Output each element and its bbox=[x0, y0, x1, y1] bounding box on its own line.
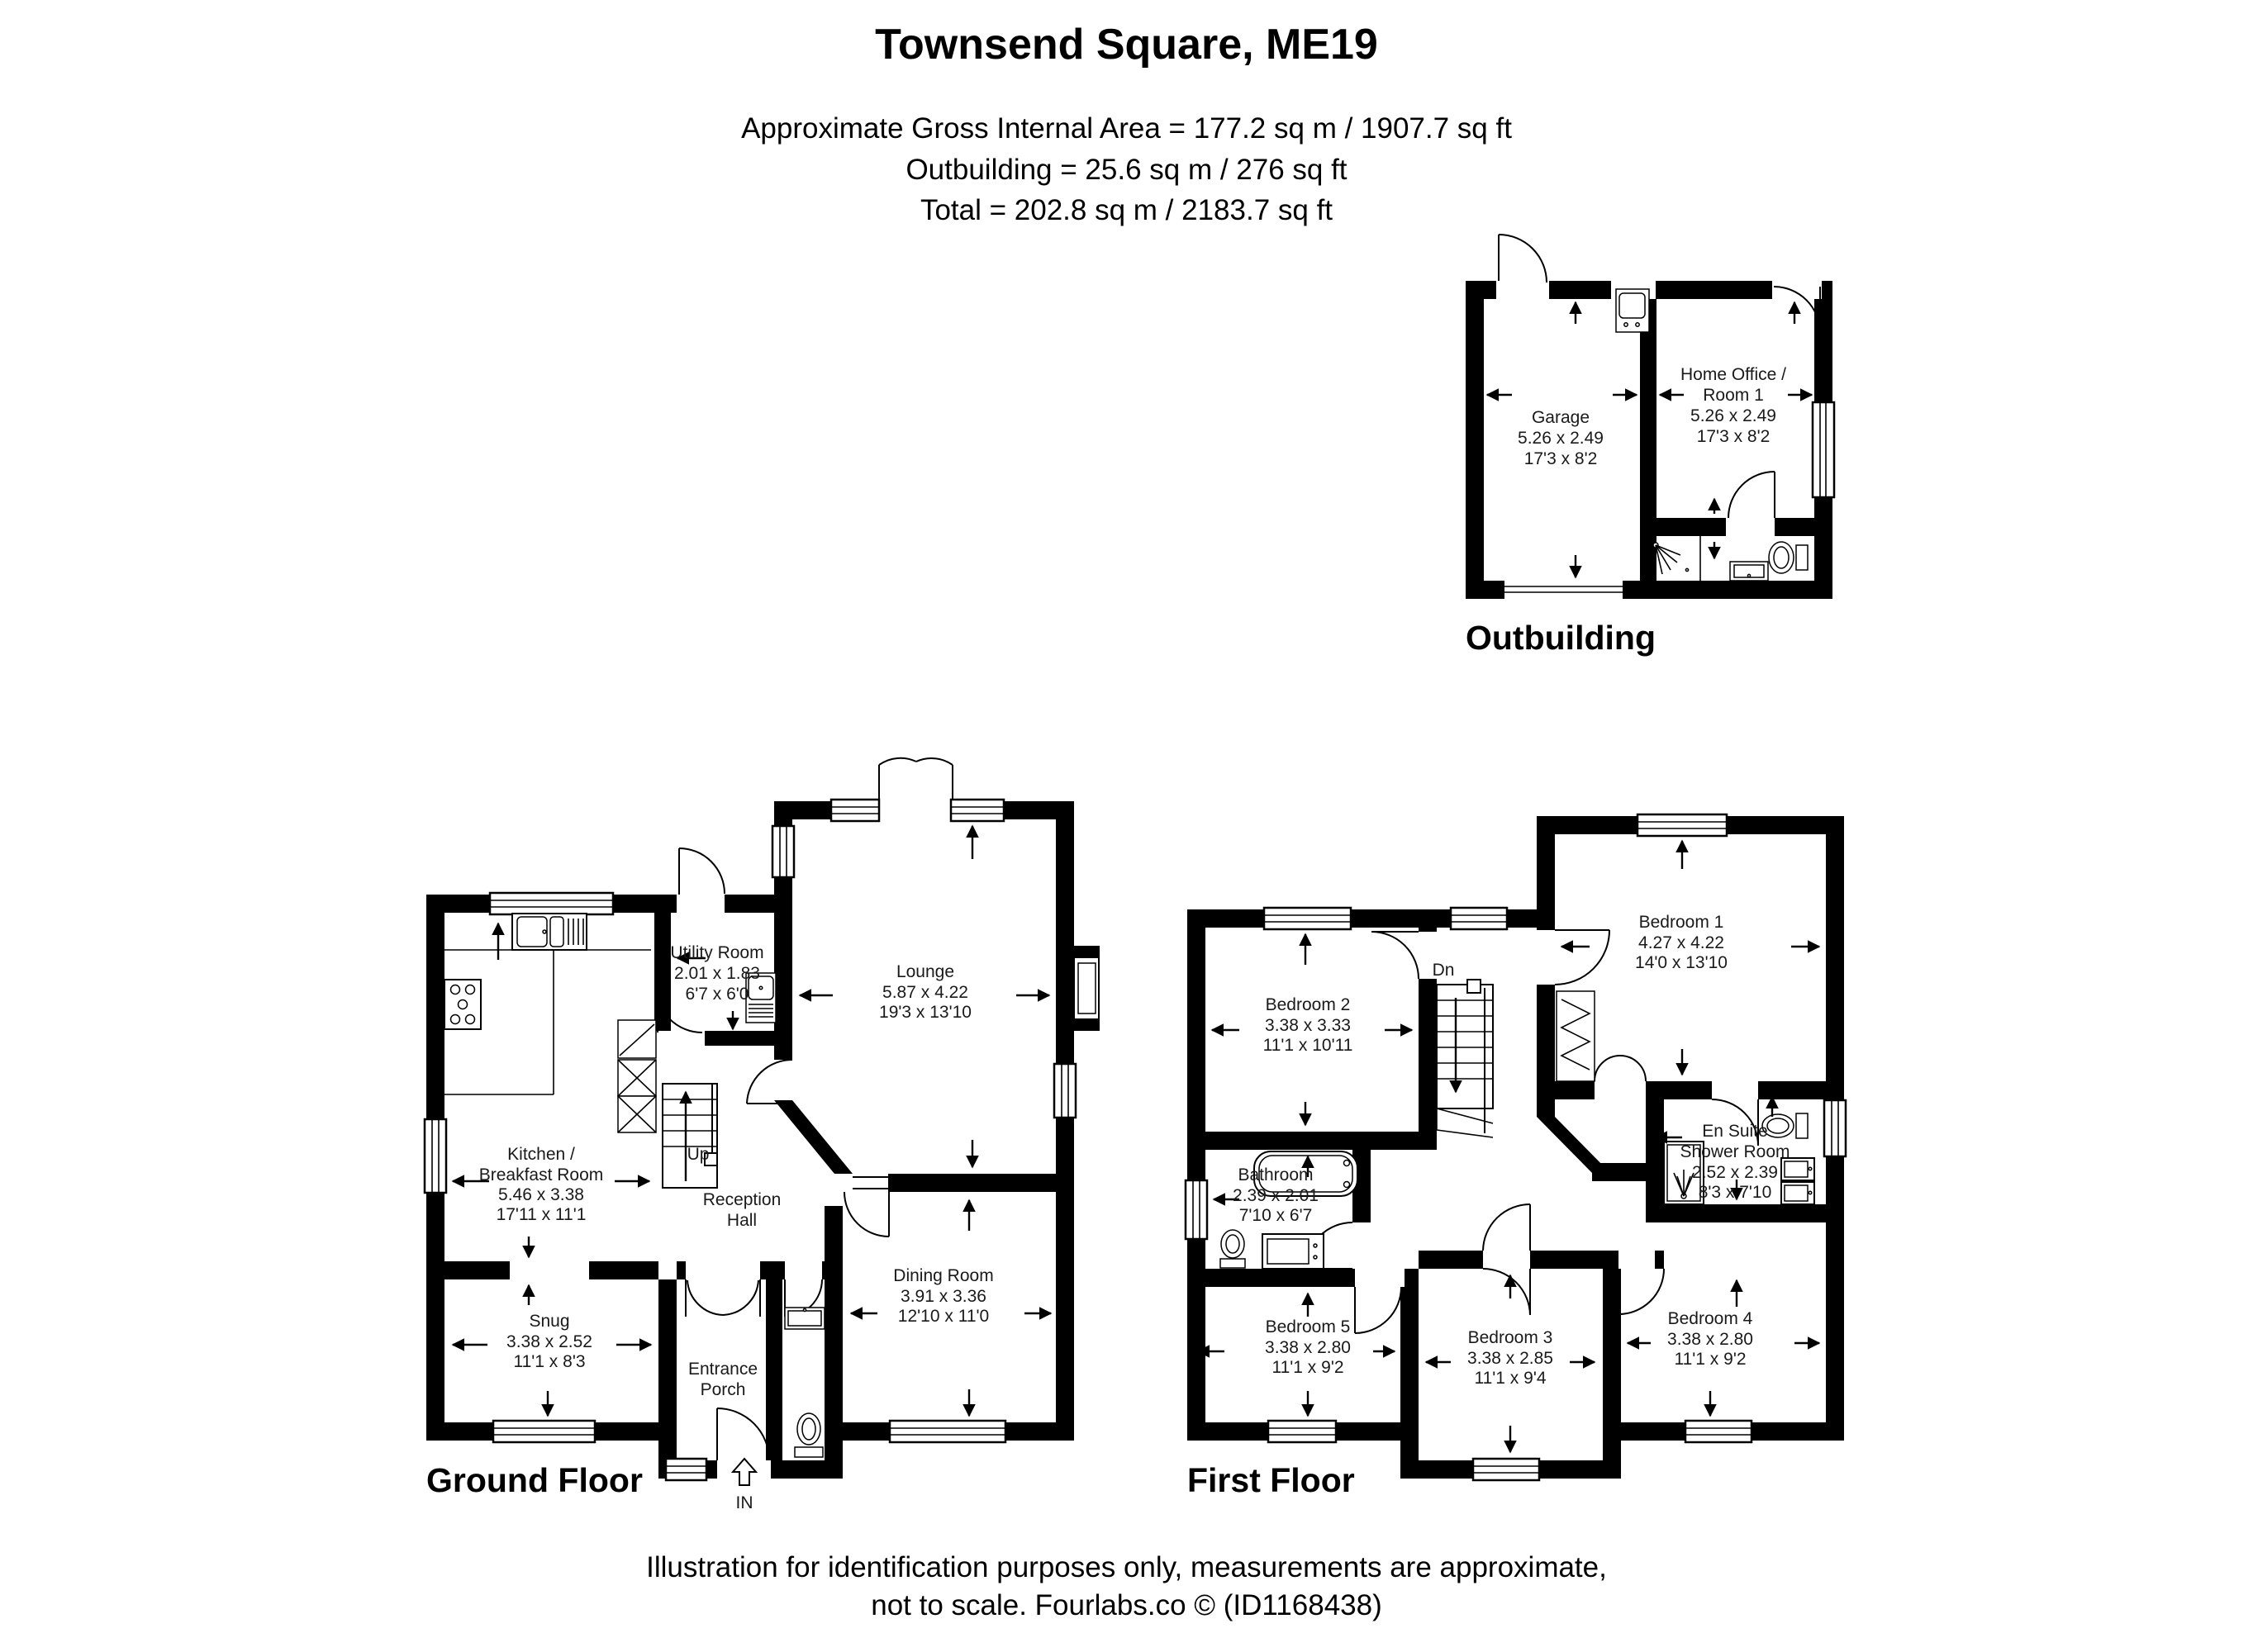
sink-icon bbox=[1616, 289, 1649, 332]
svg-text:5.26 x 2.49: 5.26 x 2.49 bbox=[1518, 429, 1604, 448]
bathroom-vanity-icon bbox=[1262, 1234, 1324, 1269]
outbuilding-title: Outbuilding bbox=[1466, 619, 1656, 657]
wc-basin-icon bbox=[785, 1308, 825, 1329]
svg-text:Breakfast Room: Breakfast Room bbox=[479, 1165, 604, 1184]
in-label: IN bbox=[736, 1493, 753, 1512]
wc-toilet-icon bbox=[795, 1413, 823, 1457]
svg-text:14'0 x 13'10: 14'0 x 13'10 bbox=[1635, 953, 1728, 972]
window-bedroom1-top bbox=[1637, 814, 1727, 836]
svg-text:3.38 x 2.80: 3.38 x 2.80 bbox=[1667, 1330, 1753, 1349]
page-title: Townsend Square, ME19 bbox=[0, 20, 2253, 69]
ensuite-label: En Suite bbox=[1702, 1122, 1767, 1141]
utility-label: Utility Room bbox=[670, 943, 763, 962]
window-bedroom4-bottom bbox=[1685, 1421, 1752, 1442]
bedroom2-label: Bedroom 2 bbox=[1266, 995, 1351, 1014]
outbuilding-area: Outbuilding = 25.6 sq m / 276 sq ft bbox=[0, 154, 2253, 187]
window-lounge-left bbox=[772, 826, 794, 877]
svg-text:2.52 x 2.39: 2.52 x 2.39 bbox=[1692, 1163, 1778, 1182]
ground-floor-title: Ground Floor bbox=[426, 1461, 643, 1499]
ground-floor-plan: Utility Room 2.01 x 1.83 6'7 x 6'0 Loung… bbox=[405, 743, 1115, 1528]
svg-text:5.26 x 2.49: 5.26 x 2.49 bbox=[1690, 406, 1776, 425]
window-porch-bottom bbox=[666, 1459, 706, 1480]
outbuilding-plan: Garage 5.26 x 2.49 17'3 x 8'2 Home Offic… bbox=[1438, 215, 1884, 677]
disclaimer-line2: not to scale. Fourlabs.co © (ID1168438) bbox=[0, 1589, 2253, 1622]
floorplan-page: Townsend Square, ME19 Approximate Gross … bbox=[0, 0, 2253, 1652]
wc-fixtures bbox=[785, 1308, 825, 1457]
svg-text:2.39 x 2.01: 2.39 x 2.01 bbox=[1233, 1186, 1319, 1205]
bedroom3-label: Bedroom 3 bbox=[1468, 1328, 1553, 1347]
kitchen-sink-icon bbox=[512, 914, 587, 950]
svg-text:6'7 x 6'0: 6'7 x 6'0 bbox=[686, 985, 749, 1004]
gross-internal-area: Approximate Gross Internal Area = 177.2 … bbox=[0, 112, 2253, 145]
svg-text:Hall: Hall bbox=[727, 1211, 757, 1230]
window-bedroom2-top-1 bbox=[1264, 908, 1351, 929]
svg-text:5.87 x 4.22: 5.87 x 4.22 bbox=[882, 983, 968, 1002]
bathroom-label: Bathroom bbox=[1238, 1165, 1313, 1184]
svg-text:17'3 x 8'2: 17'3 x 8'2 bbox=[1524, 449, 1598, 468]
openings bbox=[1355, 930, 1655, 1287]
labels: Garage 5.26 x 2.49 17'3 x 8'2 Home Offic… bbox=[1466, 365, 1786, 657]
lounge-label: Lounge bbox=[896, 962, 954, 981]
bedroom5-label: Bedroom 5 bbox=[1266, 1317, 1351, 1336]
kitchen-label: Kitchen / bbox=[507, 1145, 575, 1164]
svg-text:11'1 x 9'4: 11'1 x 9'4 bbox=[1474, 1369, 1546, 1388]
ensuite-toilet-icon bbox=[1762, 1113, 1808, 1138]
svg-text:3.38 x 2.80: 3.38 x 2.80 bbox=[1265, 1338, 1351, 1357]
bathroom-toilet-icon bbox=[1220, 1230, 1245, 1268]
svg-text:17'3 x 8'2: 17'3 x 8'2 bbox=[1697, 427, 1771, 446]
window-lounge-top-left bbox=[831, 800, 879, 821]
window-dining-bottom bbox=[890, 1421, 1005, 1442]
total-area: Total = 202.8 sq m / 2183.7 sq ft bbox=[0, 194, 2253, 227]
svg-text:2.01 x 1.83: 2.01 x 1.83 bbox=[674, 964, 760, 983]
bedroom1-label: Bedroom 1 bbox=[1639, 913, 1724, 932]
first-floor-title: First Floor bbox=[1187, 1461, 1355, 1499]
svg-text:3.91 x 3.36: 3.91 x 3.36 bbox=[901, 1287, 986, 1306]
disclaimer-line1: Illustration for identification purposes… bbox=[0, 1551, 2253, 1584]
svg-text:11'1 x 8'3: 11'1 x 8'3 bbox=[513, 1352, 585, 1371]
dining-label: Dining Room bbox=[893, 1266, 993, 1285]
wardrobe-icon bbox=[1557, 991, 1595, 1081]
svg-text:11'1 x 9'2: 11'1 x 9'2 bbox=[1674, 1350, 1746, 1369]
window-bedroom5-bottom bbox=[1268, 1421, 1336, 1442]
toilet-icon bbox=[1769, 542, 1808, 573]
svg-text:17'11 x 11'1: 17'11 x 11'1 bbox=[497, 1205, 587, 1224]
bedroom4-label: Bedroom 4 bbox=[1668, 1309, 1753, 1328]
svg-text:11'1 x 10'11: 11'1 x 10'11 bbox=[1263, 1036, 1353, 1055]
svg-text:4.27 x 4.22: 4.27 x 4.22 bbox=[1638, 933, 1724, 952]
ensuite-basin-icons bbox=[1781, 1158, 1814, 1204]
window-kitchen-top bbox=[490, 893, 613, 914]
window-snug-bottom bbox=[493, 1421, 595, 1442]
svg-text:3.38 x 2.52: 3.38 x 2.52 bbox=[506, 1332, 592, 1351]
window-bathroom-left bbox=[1186, 1180, 1207, 1239]
window-lounge-right bbox=[1054, 1064, 1076, 1118]
window-ensuite-right bbox=[1824, 1100, 1846, 1156]
window-outbuilding-right bbox=[1813, 402, 1834, 497]
shower-icon bbox=[1653, 536, 1700, 581]
svg-text:19'3 x 13'10: 19'3 x 13'10 bbox=[879, 1003, 972, 1022]
svg-text:Room 1: Room 1 bbox=[1703, 386, 1764, 405]
svg-text:11'1 x 9'2: 11'1 x 9'2 bbox=[1271, 1358, 1343, 1377]
first-floor-plan: Bedroom 2 3.38 x 3.33 11'1 x 10'11 Bedro… bbox=[1165, 793, 1859, 1520]
svg-text:Shower Room: Shower Room bbox=[1680, 1142, 1790, 1161]
basin-icon bbox=[1730, 562, 1768, 581]
stairs-down bbox=[1437, 980, 1493, 1137]
svg-text:5.46 x 3.38: 5.46 x 3.38 bbox=[498, 1185, 584, 1204]
up-label: Up bbox=[687, 1145, 710, 1164]
svg-text:12'10 x 11'0: 12'10 x 11'0 bbox=[898, 1307, 989, 1326]
under-stairs-cupboards bbox=[618, 1020, 656, 1132]
dn-label: Dn bbox=[1433, 961, 1455, 980]
svg-text:7'10 x 6'7: 7'10 x 6'7 bbox=[1239, 1206, 1313, 1225]
svg-text:8'3 x 7'10: 8'3 x 7'10 bbox=[1699, 1183, 1772, 1202]
garage-label: Garage bbox=[1532, 408, 1590, 427]
window-lounge-top-right bbox=[951, 800, 1004, 821]
window-bedroom3-bottom bbox=[1473, 1459, 1539, 1480]
fireplace-icon bbox=[1074, 947, 1099, 1030]
window-bedroom2-top-2 bbox=[1451, 908, 1507, 929]
svg-text:3.38 x 3.33: 3.38 x 3.33 bbox=[1265, 1016, 1351, 1035]
svg-text:Porch: Porch bbox=[701, 1380, 746, 1399]
home-office-label: Home Office / bbox=[1680, 365, 1786, 384]
cupboard-doors bbox=[1595, 1056, 1646, 1081]
reception-hall-label: Reception bbox=[703, 1190, 782, 1209]
svg-text:3.38 x 2.85: 3.38 x 2.85 bbox=[1467, 1349, 1553, 1368]
hob-icon bbox=[444, 980, 481, 1029]
window-kitchen-left bbox=[425, 1119, 446, 1193]
snug-label: Snug bbox=[529, 1312, 569, 1331]
porch-label: Entrance bbox=[688, 1360, 758, 1379]
